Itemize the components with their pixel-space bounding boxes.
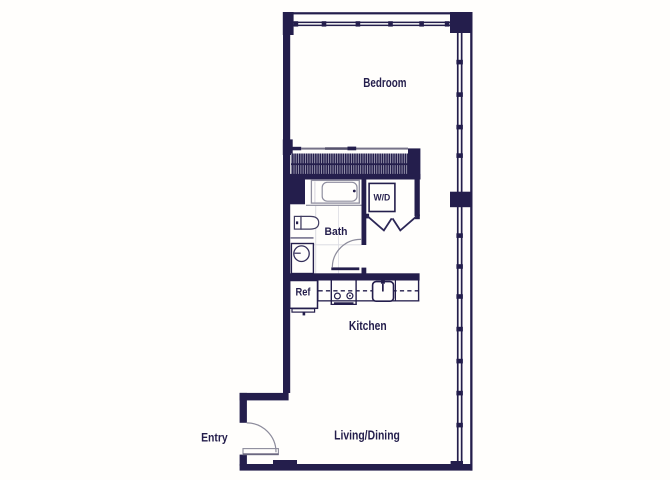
svg-text:Bath: Bath <box>325 226 348 238</box>
svg-text:Living/Dining: Living/Dining <box>334 429 400 443</box>
svg-text:Bedroom: Bedroom <box>363 75 406 90</box>
svg-text:Entry: Entry <box>201 430 228 444</box>
svg-text:W/D: W/D <box>374 193 391 203</box>
svg-text:Kitchen: Kitchen <box>349 319 387 333</box>
svg-text:Ref: Ref <box>296 286 311 298</box>
